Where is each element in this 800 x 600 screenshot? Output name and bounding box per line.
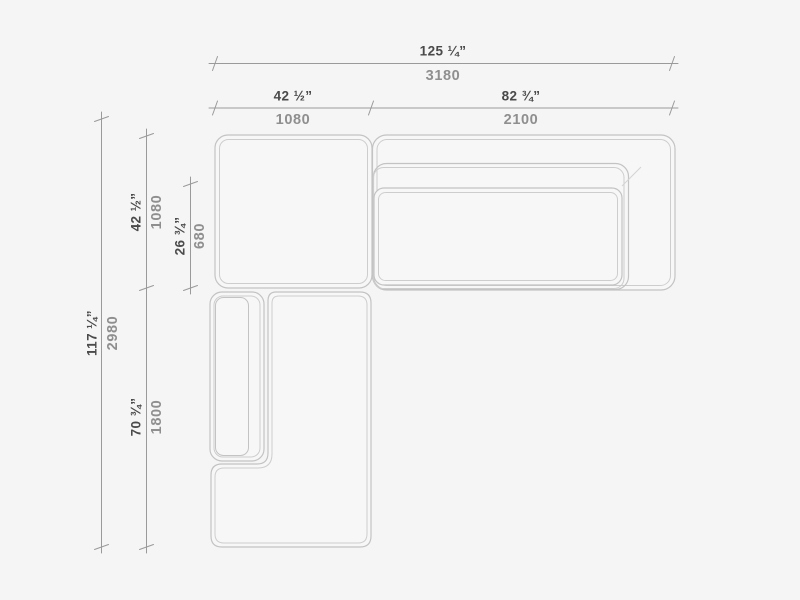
- label-overall-width-metric: 3180: [426, 69, 461, 84]
- sofa-outline: [210, 135, 675, 547]
- label-left-module-width-imperial: 42 ½”: [274, 89, 313, 103]
- chaise-armrest: [210, 292, 264, 461]
- label-overall-depth-imperial: 117 ¼”: [85, 310, 99, 356]
- label-right-module-width-imperial: 82 ¾”: [502, 89, 541, 103]
- label-seat-depth-metric: 680: [193, 223, 208, 249]
- label-chaise-length-metric: 1800: [150, 400, 165, 435]
- label-right-module-width-metric: 2100: [504, 113, 539, 128]
- dimension-lines: [95, 57, 679, 554]
- label-left-module-width-metric: 1080: [276, 113, 311, 128]
- label-upper-module-depth-metric: 1080: [150, 195, 165, 230]
- corner-module: [215, 135, 372, 288]
- label-upper-module-depth-imperial: 42 ½”: [129, 193, 143, 232]
- label-seat-depth-imperial: 26 ¾”: [173, 217, 187, 256]
- sofa-top-view-drawing: [0, 0, 800, 600]
- armrest-cushion: [216, 298, 249, 456]
- sofa-module: [373, 135, 676, 290]
- label-overall-depth-metric: 2980: [106, 316, 121, 351]
- label-chaise-length-imperial: 70 ¾”: [129, 398, 143, 437]
- label-overall-width-imperial: 125 ¼”: [420, 44, 467, 58]
- dimension-diagram: 125 ¼” 3180 42 ½” 1080 82 ¾” 2100 117 ¼”…: [0, 0, 800, 600]
- seat-cushion: [374, 188, 622, 285]
- chaise-module: [210, 292, 371, 547]
